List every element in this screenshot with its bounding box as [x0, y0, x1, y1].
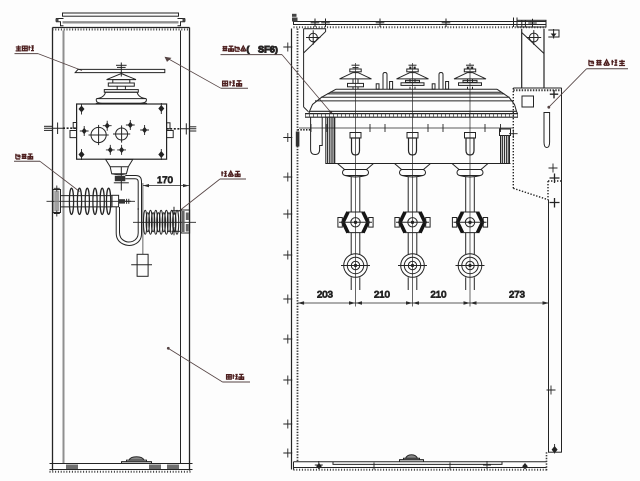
- svg-text:273: 273: [509, 290, 525, 301]
- svg-text:(: (: [247, 44, 250, 54]
- svg-text:170: 170: [157, 175, 173, 186]
- svg-text:203: 203: [317, 290, 333, 301]
- svg-text:210: 210: [431, 290, 447, 301]
- svg-text:): ): [275, 45, 278, 55]
- svg-text:SF6: SF6: [258, 45, 275, 55]
- svg-text:210: 210: [374, 290, 390, 301]
